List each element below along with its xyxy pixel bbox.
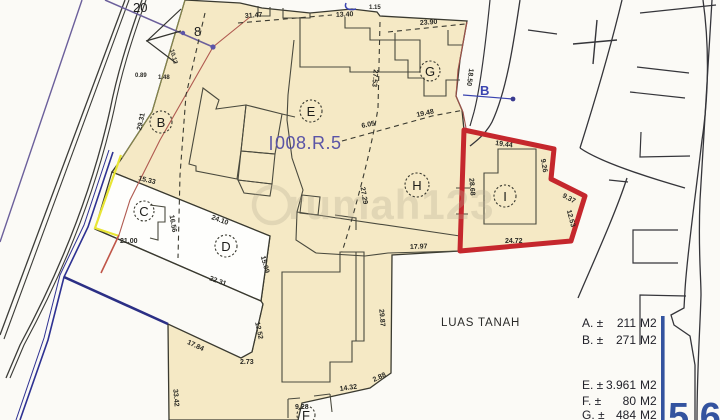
svg-text:1.48: 1.48 [158, 75, 170, 81]
svg-text:B. ±: B. ± [582, 333, 604, 347]
svg-text:E. ±: E. ± [582, 378, 604, 392]
svg-text:484: 484 [616, 408, 636, 420]
svg-text:1.15: 1.15 [369, 5, 381, 11]
svg-text:008.R.5: 008.R.5 [275, 133, 342, 153]
svg-text:24.72: 24.72 [505, 238, 523, 245]
svg-text:13.40: 13.40 [336, 11, 354, 19]
svg-text:21.00: 21.00 [120, 238, 138, 245]
svg-text:31.47: 31.47 [245, 12, 263, 20]
svg-text:M2: M2 [640, 378, 657, 392]
svg-text:LUAS TANAH: LUAS TANAH [441, 317, 520, 329]
svg-text:211: 211 [617, 316, 636, 330]
svg-text:2.73: 2.73 [240, 359, 254, 366]
svg-text:M2: M2 [640, 394, 657, 408]
svg-text:20: 20 [133, 0, 147, 15]
svg-text:9.28: 9.28 [295, 404, 309, 411]
svg-text:C: C [139, 204, 148, 219]
svg-text:G: G [425, 64, 435, 79]
svg-text:A. ±: A. ± [582, 316, 604, 330]
svg-text:80: 80 [623, 394, 637, 408]
svg-text:3.961: 3.961 [606, 378, 636, 392]
svg-text:23.90: 23.90 [420, 19, 438, 27]
svg-text:F. ±: F. ± [582, 394, 602, 408]
svg-text:0.89: 0.89 [135, 73, 147, 79]
svg-text:B: B [480, 83, 489, 98]
svg-text:17.97: 17.97 [410, 243, 428, 251]
svg-text:M2: M2 [640, 408, 657, 420]
svg-text:E: E [307, 104, 316, 119]
svg-text:M2: M2 [640, 316, 657, 330]
svg-text:B: B [157, 115, 166, 130]
svg-text:rumah123: rumah123 [288, 181, 494, 228]
svg-text:5.65: 5.65 [668, 396, 720, 420]
svg-text:8: 8 [194, 24, 201, 39]
svg-text:M2: M2 [640, 333, 657, 347]
svg-text:D: D [221, 239, 230, 254]
svg-text:G. ±: G. ± [582, 408, 605, 420]
svg-text:H: H [412, 178, 421, 193]
svg-text:I: I [503, 189, 507, 204]
svg-text:271: 271 [616, 333, 636, 347]
